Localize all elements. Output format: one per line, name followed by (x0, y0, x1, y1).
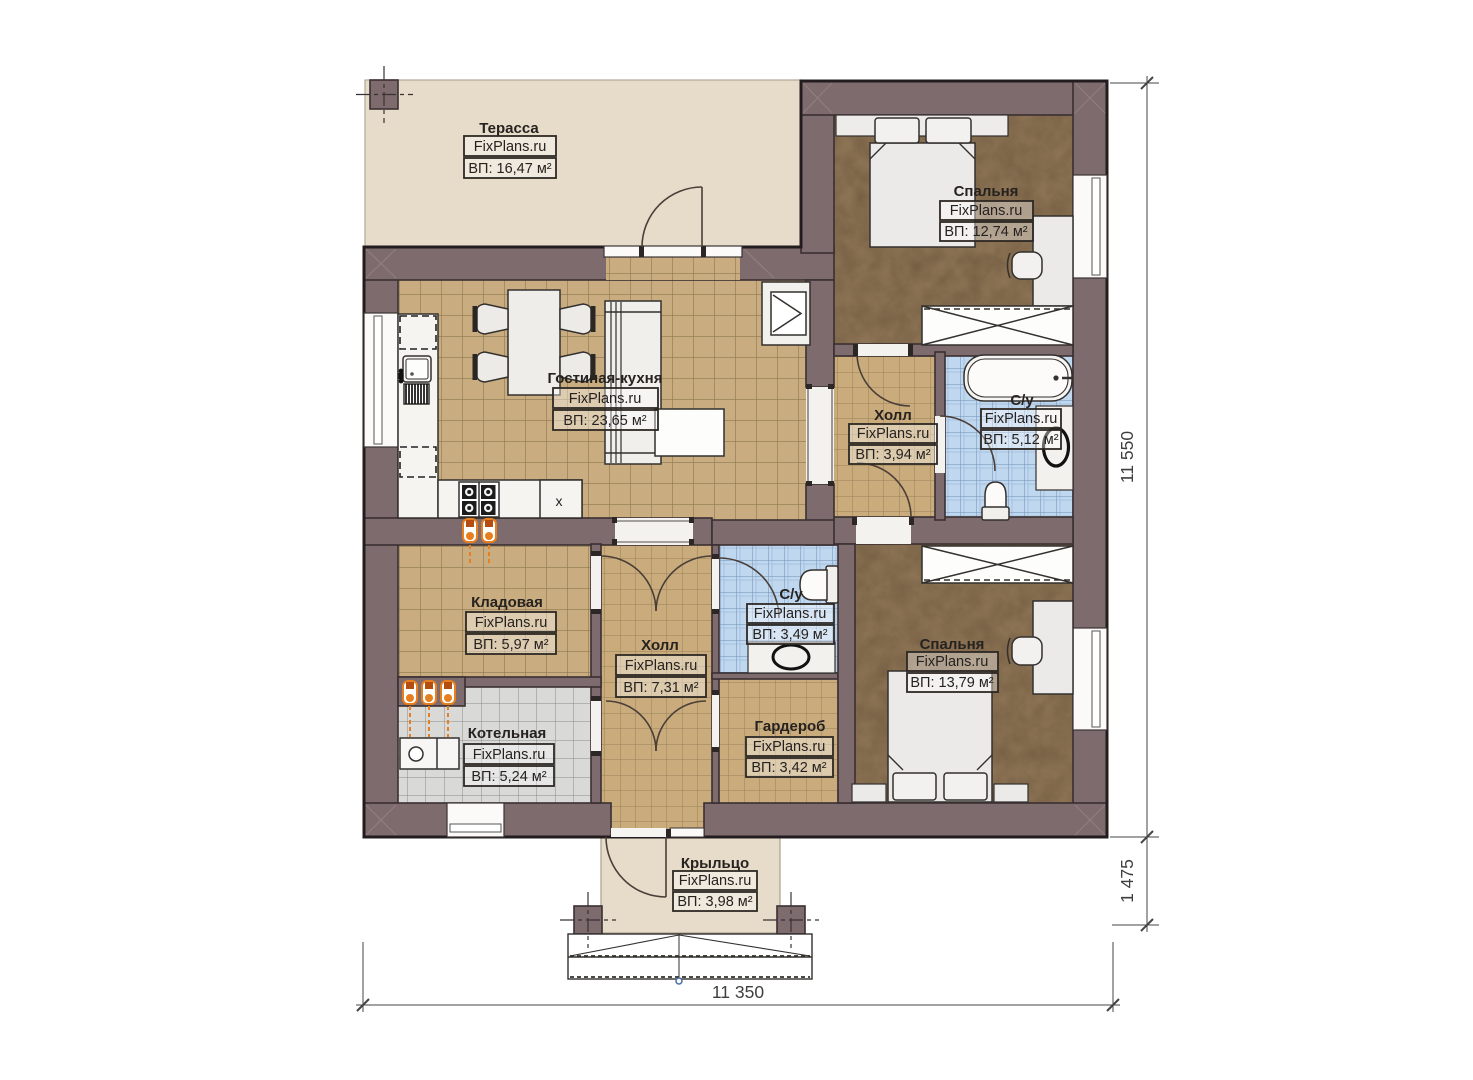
svg-text:FixPlans.ru: FixPlans.ru (569, 391, 642, 407)
svg-text:ВП: 13,79 м²: ВП: 13,79 м² (910, 675, 993, 691)
svg-text:ВП: 3,94 м²: ВП: 3,94 м² (855, 447, 930, 463)
svg-text:Гардероб: Гардероб (755, 718, 826, 735)
svg-text:FixPlans.ru: FixPlans.ru (916, 654, 989, 670)
svg-text:ВП: 16,47 м²: ВП: 16,47 м² (468, 161, 551, 177)
svg-text:С/у: С/у (1010, 392, 1034, 409)
svg-text:FixPlans.ru: FixPlans.ru (753, 739, 826, 755)
svg-text:Спальня: Спальня (920, 636, 985, 653)
svg-text:FixPlans.ru: FixPlans.ru (625, 658, 698, 674)
svg-text:11 550: 11 550 (1117, 431, 1137, 483)
svg-text:Котельная: Котельная (468, 725, 547, 742)
svg-text:FixPlans.ru: FixPlans.ru (857, 426, 930, 442)
svg-text:1 475: 1 475 (1117, 859, 1137, 903)
svg-text:ВП: 23,65 м²: ВП: 23,65 м² (563, 413, 646, 429)
svg-text:Спальня: Спальня (954, 183, 1019, 200)
svg-text:11 350: 11 350 (712, 982, 764, 1002)
svg-text:FixPlans.ru: FixPlans.ru (473, 747, 546, 763)
svg-text:FixPlans.ru: FixPlans.ru (679, 873, 752, 889)
svg-text:ВП: 5,24 м²: ВП: 5,24 м² (471, 769, 546, 785)
svg-text:FixPlans.ru: FixPlans.ru (950, 203, 1023, 219)
svg-text:ВП: 7,31 м²: ВП: 7,31 м² (623, 680, 698, 696)
svg-text:ВП: 3,42 м²: ВП: 3,42 м² (751, 760, 826, 776)
svg-text:ВП: 3,98 м²: ВП: 3,98 м² (677, 894, 752, 910)
svg-text:FixPlans.ru: FixPlans.ru (754, 606, 827, 622)
svg-text:ВП: 12,74 м²: ВП: 12,74 м² (944, 224, 1027, 240)
svg-text:ВП: 5,97 м²: ВП: 5,97 м² (473, 637, 548, 653)
svg-text:ВП: 3,49 м²: ВП: 3,49 м² (752, 627, 827, 643)
svg-text:Холл: Холл (641, 637, 679, 654)
svg-text:Гостиная-кухня: Гостиная-кухня (548, 370, 663, 387)
svg-text:FixPlans.ru: FixPlans.ru (985, 411, 1058, 427)
svg-text:Холл: Холл (874, 407, 912, 424)
svg-text:FixPlans.ru: FixPlans.ru (474, 139, 547, 155)
svg-text:FixPlans.ru: FixPlans.ru (475, 615, 548, 631)
svg-text:Кладовая: Кладовая (471, 594, 543, 611)
svg-text:ВП: 5,12 м²: ВП: 5,12 м² (983, 432, 1058, 448)
svg-text:Терасса: Терасса (479, 120, 539, 137)
svg-text:x: x (556, 493, 563, 509)
svg-text:С/у: С/у (779, 586, 803, 603)
svg-text:Крыльцо: Крыльцо (681, 855, 749, 872)
